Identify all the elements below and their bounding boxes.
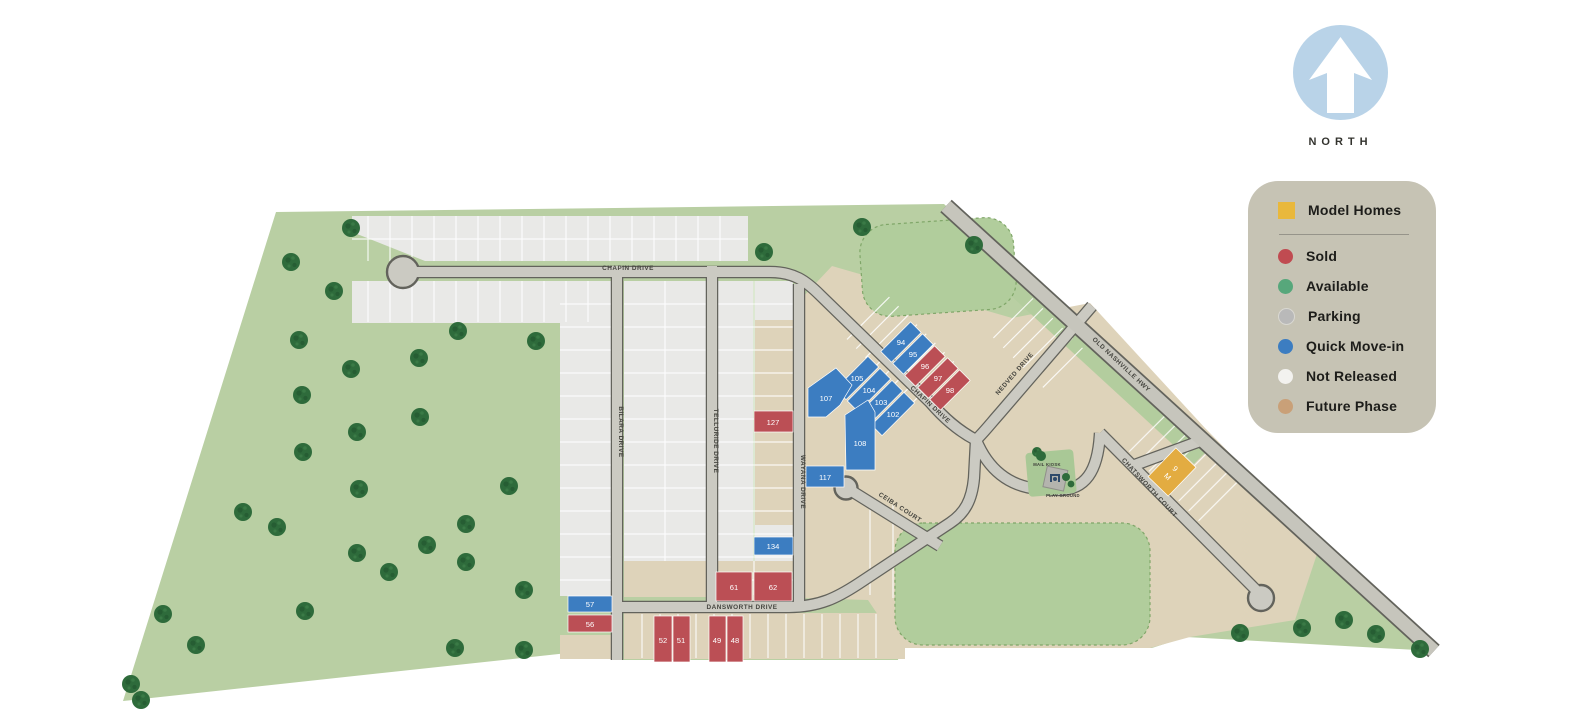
svg-text:127: 127	[767, 418, 780, 427]
svg-text:95: 95	[909, 350, 917, 359]
svg-text:117: 117	[819, 473, 831, 482]
lot-48[interactable]: 48	[727, 616, 743, 662]
mail-kiosk-label: MAIL KIOSK	[1033, 462, 1061, 467]
legend-item-quick-move-in: Quick Move-in	[1278, 331, 1436, 361]
parking-dot-icon	[1278, 308, 1295, 325]
legend-item-future-phase: Future Phase	[1278, 391, 1436, 421]
legend-label: Available	[1306, 278, 1369, 294]
svg-text:103: 103	[875, 398, 888, 407]
lot-134[interactable]: 134	[754, 537, 793, 555]
svg-text:97: 97	[934, 374, 942, 383]
open-space-north	[858, 216, 1018, 319]
legend-item-sold: Sold	[1278, 241, 1436, 271]
lot-62[interactable]: 62	[754, 572, 792, 601]
legend-item-not-released: Not Released	[1278, 361, 1436, 391]
svg-text:107: 107	[820, 394, 833, 403]
svg-text:98: 98	[946, 386, 954, 395]
legend-item-model-homes: Model Homes	[1278, 195, 1436, 225]
svg-text:52: 52	[659, 636, 667, 645]
svg-text:102: 102	[887, 410, 900, 419]
lot-61[interactable]: 61	[716, 572, 752, 601]
lot-56[interactable]: 56	[568, 615, 612, 632]
available-dot-icon	[1278, 279, 1293, 294]
play-ground-label: PLAY GROUND	[1046, 493, 1080, 498]
legend-label: Model Homes	[1308, 202, 1401, 218]
playground-area: MAIL KIOSK PLAY GROUND	[1025, 447, 1080, 498]
legend-panel: Model Homes Sold Available Parking Quick…	[1248, 181, 1436, 433]
svg-text:61: 61	[730, 583, 738, 592]
svg-text:96: 96	[921, 362, 929, 371]
north-label: NORTH	[1293, 136, 1388, 148]
lot-51[interactable]: 51	[673, 616, 690, 662]
svg-text:49: 49	[713, 636, 721, 645]
sold-dot-icon	[1278, 249, 1293, 264]
legend-item-parking: Parking	[1278, 301, 1436, 331]
legend-label: Parking	[1308, 308, 1361, 324]
north-arrow-icon	[1293, 25, 1388, 120]
svg-text:108: 108	[854, 439, 867, 448]
svg-text:104: 104	[863, 386, 876, 395]
lot-52[interactable]: 52	[654, 616, 672, 662]
svg-text:51: 51	[677, 636, 685, 645]
legend-label: Quick Move-in	[1306, 338, 1404, 354]
lot-117[interactable]: 117	[806, 466, 844, 487]
model-homes-swatch	[1278, 202, 1295, 219]
svg-text:48: 48	[731, 636, 739, 645]
street-label-wayana: WAYANA DRIVE	[799, 455, 806, 510]
legend-item-available: Available	[1278, 271, 1436, 301]
not-released-dot-icon	[1278, 369, 1293, 384]
street-label-chapin: CHAPIN DRIVE	[602, 265, 654, 272]
lot-127[interactable]: 127	[754, 411, 793, 432]
svg-text:134: 134	[767, 542, 780, 551]
svg-text:105: 105	[851, 374, 864, 383]
svg-text:62: 62	[769, 583, 777, 592]
playground-icon	[1050, 474, 1060, 482]
lot-57[interactable]: 57	[568, 596, 612, 612]
quick-move-in-dot-icon	[1278, 339, 1293, 354]
future-phase-dot-icon	[1278, 399, 1293, 414]
street-label-dansworth: DANSWORTH DRIVE	[706, 604, 777, 611]
site-plan-page: MAIL KIOSK PLAY GROUND 94 95 96 97 98 10…	[0, 0, 1580, 718]
svg-text:94: 94	[897, 338, 905, 347]
lot-49[interactable]: 49	[709, 616, 726, 662]
svg-text:57: 57	[586, 600, 594, 609]
north-indicator: NORTH	[1293, 25, 1388, 148]
legend-label: Not Released	[1306, 368, 1397, 384]
legend-label: Sold	[1306, 248, 1337, 264]
legend-divider	[1279, 234, 1409, 235]
street-label-bilara: BILARA DRIVE	[617, 406, 624, 457]
svg-text:56: 56	[586, 620, 594, 629]
street-label-telluride: TELLURIDE DRIVE	[712, 409, 719, 474]
legend-label: Future Phase	[1306, 398, 1397, 414]
